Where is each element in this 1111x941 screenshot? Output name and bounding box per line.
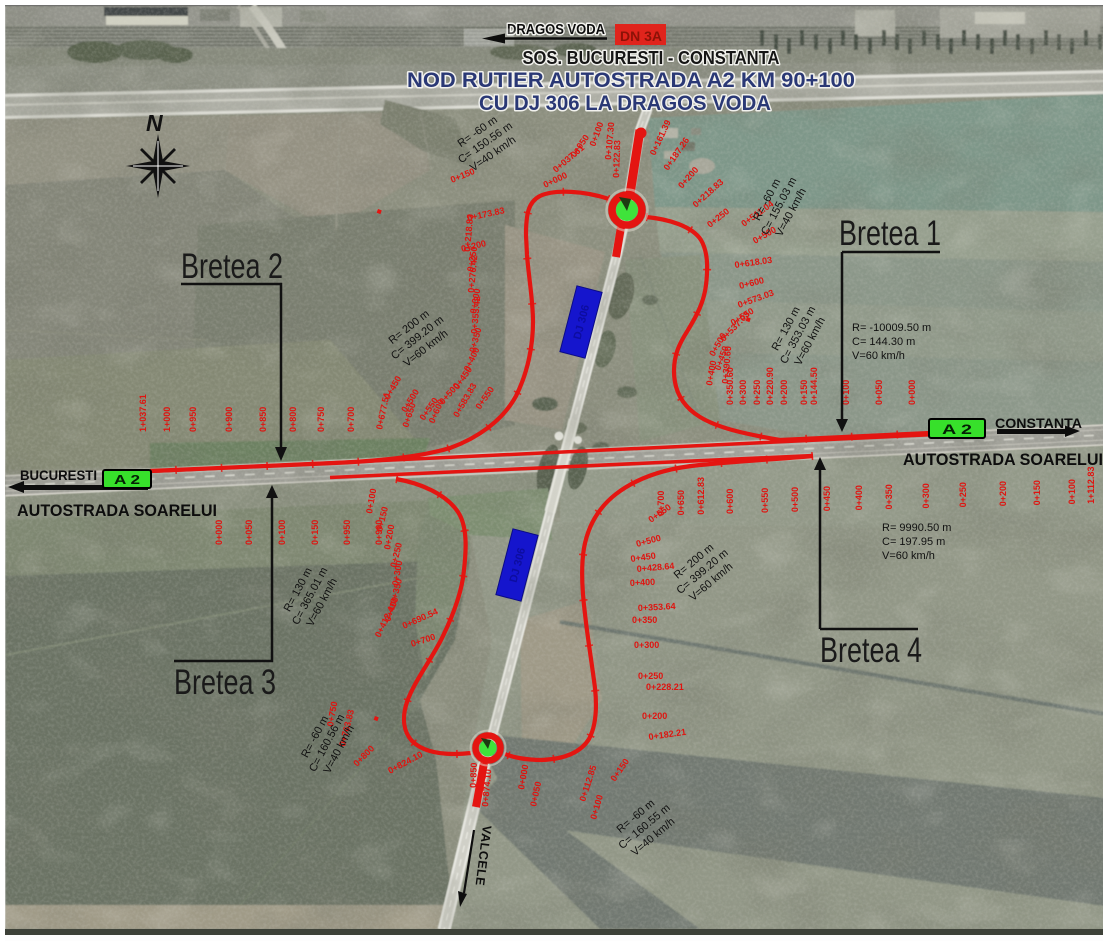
svg-text:0+000: 0+000 <box>214 520 224 545</box>
svg-text:0+950: 0+950 <box>342 520 352 545</box>
svg-text:0+220.90: 0+220.90 <box>765 367 775 405</box>
svg-text:AUTOSTRADA SOARELUI: AUTOSTRADA SOARELUI <box>17 501 217 520</box>
svg-text:0+850: 0+850 <box>258 407 268 432</box>
svg-text:N: N <box>146 110 163 136</box>
svg-text:0+600: 0+600 <box>725 489 735 514</box>
svg-text:0+000: 0+000 <box>907 380 917 405</box>
svg-text:0+550: 0+550 <box>760 488 770 513</box>
svg-text:Bretea 1: Bretea 1 <box>839 214 941 253</box>
svg-text:0+200: 0+200 <box>998 481 1008 506</box>
svg-text:0+200: 0+200 <box>642 711 667 721</box>
svg-text:0+850: 0+850 <box>468 762 479 788</box>
svg-text:0+150: 0+150 <box>310 520 320 545</box>
svg-text:Bretea 2: Bretea 2 <box>181 247 283 286</box>
svg-text:0+612.83: 0+612.83 <box>696 477 706 515</box>
svg-text:0+144.50: 0+144.50 <box>809 367 819 405</box>
svg-text:0+122.83: 0+122.83 <box>611 140 622 178</box>
svg-text:Bretea 3: Bretea 3 <box>174 663 276 702</box>
svg-text:0+300: 0+300 <box>634 640 659 650</box>
svg-text:0+150: 0+150 <box>1032 480 1042 505</box>
svg-text:1+000: 1+000 <box>162 407 172 432</box>
svg-text:CU DJ 306 LA DRAGOS VODA: CU DJ 306 LA DRAGOS VODA <box>479 92 771 115</box>
svg-text:DRAGOS VODA: DRAGOS VODA <box>507 22 605 38</box>
svg-text:0+200: 0+200 <box>779 380 789 405</box>
svg-text:BUCURESTI: BUCURESTI <box>20 468 97 483</box>
svg-text:AUTOSTRADA SOARELUI: AUTOSTRADA SOARELUI <box>903 450 1103 469</box>
svg-text:0+400: 0+400 <box>854 485 864 510</box>
svg-text:SOS. BUCURESTI - CONSTANTA: SOS. BUCURESTI - CONSTANTA <box>523 48 780 68</box>
svg-text:0+350: 0+350 <box>632 615 657 625</box>
svg-text:0+300: 0+300 <box>921 483 931 508</box>
svg-text:0+050: 0+050 <box>244 520 254 545</box>
svg-text:0+400: 0+400 <box>630 577 656 588</box>
svg-text:0+250: 0+250 <box>638 671 663 681</box>
svg-text:0+353.64: 0+353.64 <box>638 601 676 613</box>
svg-text:NOD RUTIER AUTOSTRADA A2 KM 90: NOD RUTIER AUTOSTRADA A2 KM 90+100 <box>407 69 855 92</box>
svg-text:0+250: 0+250 <box>958 482 968 507</box>
svg-text:Bretea 4: Bretea 4 <box>820 631 922 670</box>
svg-text:0+300: 0+300 <box>738 380 748 405</box>
svg-text:0+800: 0+800 <box>288 407 298 432</box>
svg-text:0+750: 0+750 <box>316 407 326 432</box>
svg-text:0+100: 0+100 <box>1067 479 1077 504</box>
svg-text:0+050: 0+050 <box>874 380 884 405</box>
svg-text:DN 3A: DN 3A <box>620 28 662 44</box>
svg-text:1+112.83: 1+112.83 <box>1086 467 1096 504</box>
svg-text:0+950: 0+950 <box>188 407 198 432</box>
svg-text:A 2: A 2 <box>114 472 140 487</box>
svg-text:0+228.21: 0+228.21 <box>646 682 684 692</box>
svg-text:0+100: 0+100 <box>277 520 287 545</box>
svg-text:0+500: 0+500 <box>790 487 800 512</box>
svg-text:0+350: 0+350 <box>884 484 894 509</box>
svg-text:0+250: 0+250 <box>752 380 762 405</box>
svg-text:0+700: 0+700 <box>346 407 356 432</box>
svg-text:0+450: 0+450 <box>822 486 832 511</box>
svg-text:0+900: 0+900 <box>224 407 234 432</box>
svg-text:0+150: 0+150 <box>799 380 809 405</box>
svg-text:A 2: A 2 <box>942 421 972 437</box>
svg-text:0+650: 0+650 <box>676 490 686 515</box>
svg-text:1+037.61: 1+037.61 <box>138 394 148 432</box>
